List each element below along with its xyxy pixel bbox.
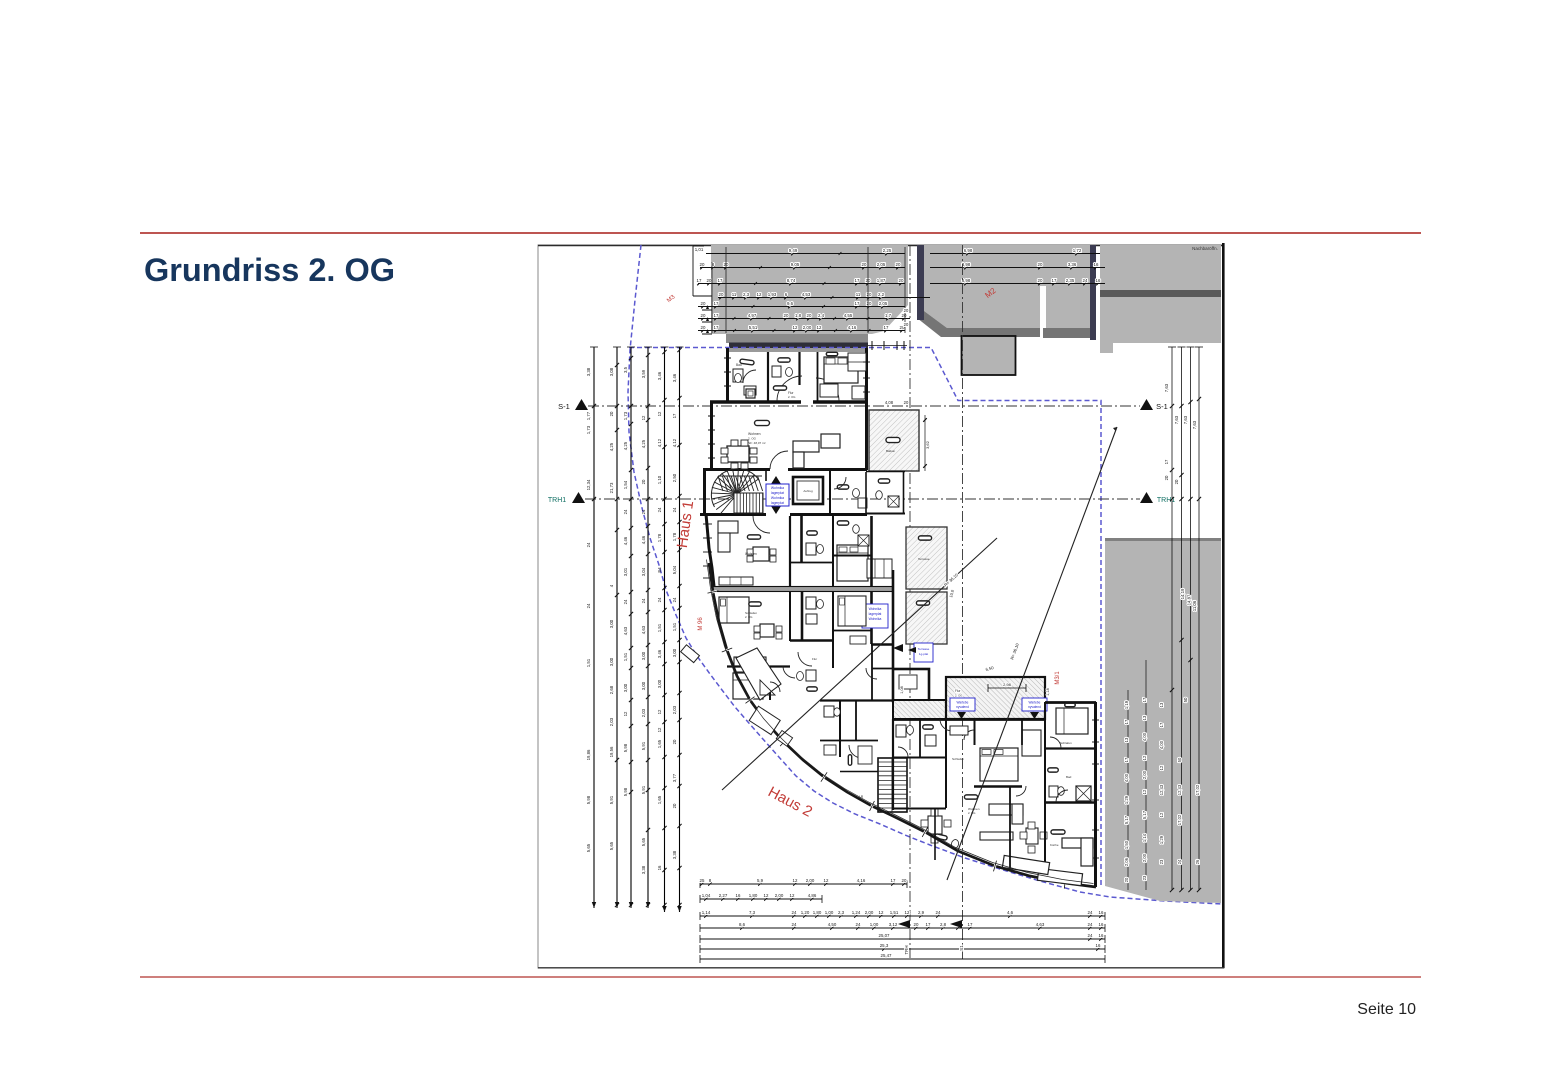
- svg-text:E4: E4: [657, 567, 662, 573]
- svg-text:5,51: 5,51: [749, 325, 758, 330]
- svg-text:20: 20: [902, 313, 907, 318]
- svg-text:7,63: 7,63: [1164, 383, 1169, 392]
- svg-text:Bad: Bad: [1066, 775, 1072, 779]
- svg-text:24: 24: [657, 507, 662, 512]
- svg-text:4,55: 4,55: [844, 313, 853, 318]
- svg-text:2,4: 2,4: [818, 313, 825, 318]
- svg-text:12: 12: [1142, 789, 1147, 794]
- svg-text:20: 20: [641, 479, 646, 484]
- svg-text:4,46: 4,46: [623, 536, 628, 545]
- svg-text:2,68: 2,68: [609, 685, 614, 694]
- svg-text:Wohnika: Wohnika: [869, 607, 882, 611]
- svg-text:24: 24: [856, 922, 861, 927]
- svg-text:24: 24: [1088, 922, 1093, 927]
- svg-text:24: 24: [792, 922, 797, 927]
- svg-text:12: 12: [905, 910, 910, 915]
- svg-text:17: 17: [672, 413, 677, 418]
- svg-text:17: 17: [891, 878, 896, 883]
- svg-text:4,6: 4,6: [1007, 910, 1014, 915]
- svg-text:1,10: 1,10: [657, 475, 662, 484]
- svg-text:2,00: 2,00: [775, 893, 784, 898]
- svg-text:12: 12: [657, 709, 662, 714]
- svg-text:3,01: 3,01: [623, 567, 628, 576]
- svg-text:20: 20: [904, 322, 909, 327]
- svg-text:20: 20: [867, 301, 872, 306]
- svg-text:1,78: 1,78: [657, 533, 662, 542]
- svg-text:4,86: 4,86: [808, 893, 817, 898]
- svg-text:4,25: 4,25: [609, 442, 614, 451]
- svg-text:23: 23: [1159, 859, 1164, 864]
- svg-text:20: 20: [914, 922, 919, 927]
- svg-text:17: 17: [884, 325, 889, 330]
- svg-text:5,04: 5,04: [672, 565, 677, 574]
- svg-text:13: 13: [1142, 715, 1147, 720]
- svg-text:17: 17: [926, 922, 931, 927]
- svg-text:5,91: 5,91: [609, 795, 614, 804]
- svg-text:4,53: 4,53: [802, 292, 811, 297]
- svg-text:12: 12: [1159, 765, 1164, 770]
- svg-text:2. OG: 2. OG: [788, 395, 795, 399]
- svg-text:4,16: 4,16: [857, 878, 866, 883]
- svg-text:21,73: 21,73: [609, 482, 614, 493]
- svg-text:4,46: 4,46: [641, 535, 646, 544]
- svg-text:16: 16: [736, 893, 741, 898]
- svg-text:Wohnika: Wohnika: [771, 486, 784, 490]
- svg-text:2. OG: 2. OG: [745, 615, 752, 619]
- svg-text:1,65: 1,65: [657, 795, 662, 804]
- svg-text:25: 25: [700, 878, 705, 883]
- svg-text:20: 20: [701, 313, 706, 318]
- svg-text:5,65: 5,65: [586, 843, 591, 852]
- svg-text:TRH1: TRH1: [548, 497, 566, 504]
- svg-text:8,74: 8,74: [787, 278, 796, 283]
- svg-text:1,51: 1,51: [672, 622, 677, 631]
- svg-text:1,51: 1,51: [890, 910, 899, 915]
- svg-text:17: 17: [968, 922, 973, 927]
- svg-text:3,12: 3,12: [889, 922, 898, 927]
- svg-text:17: 17: [1164, 459, 1169, 464]
- svg-text:4,00: 4,00: [1124, 773, 1129, 782]
- svg-text:2,03: 2,03: [672, 705, 677, 714]
- svg-text:19,56: 19,56: [609, 746, 614, 757]
- svg-text:Wartebe: Wartebe: [957, 701, 969, 705]
- svg-text:1,04: 1,04: [702, 893, 711, 898]
- svg-text:Aufzug: Aufzug: [803, 489, 813, 493]
- svg-text:20: 20: [904, 400, 909, 405]
- svg-text:50: 50: [1177, 757, 1182, 762]
- svg-text:2,98: 2,98: [1003, 682, 1012, 687]
- svg-text:12: 12: [623, 711, 628, 716]
- svg-text:3,59: 3,59: [641, 369, 646, 378]
- svg-text:24: 24: [657, 597, 662, 602]
- svg-text:1,80: 1,80: [749, 893, 758, 898]
- svg-text:17,02: 17,02: [1195, 784, 1200, 795]
- svg-text:17: 17: [855, 278, 860, 283]
- svg-text:3,46: 3,46: [672, 373, 677, 382]
- svg-text:lagerplat: lagerplat: [771, 491, 784, 495]
- svg-text:2,03: 2,03: [641, 708, 646, 717]
- svg-text:20: 20: [701, 325, 706, 330]
- svg-text:12: 12: [757, 292, 762, 297]
- svg-text:9,6: 9,6: [787, 301, 794, 306]
- svg-text:nyvalend: nyvalend: [1028, 705, 1041, 709]
- svg-text:3,00: 3,00: [609, 657, 614, 666]
- svg-text:3,00: 3,00: [623, 683, 628, 692]
- svg-text:2,00: 2,00: [865, 910, 874, 915]
- svg-text:12: 12: [824, 878, 829, 883]
- svg-text:4,00: 4,00: [1142, 732, 1147, 741]
- svg-text:Küche: Küche: [1050, 843, 1059, 847]
- svg-text:2,00: 2,00: [1142, 853, 1147, 862]
- svg-text:1,08: 1,08: [900, 686, 904, 693]
- svg-text:2,3: 2,3: [838, 910, 845, 915]
- svg-text:16: 16: [1096, 943, 1101, 948]
- svg-text:Wohnen: Wohnen: [745, 552, 757, 556]
- svg-text:1,29: 1,29: [1159, 835, 1164, 844]
- svg-text:16: 16: [657, 865, 662, 870]
- svg-text:4,08: 4,08: [885, 400, 894, 405]
- svg-text:1,51: 1,51: [586, 658, 591, 667]
- svg-text:24: 24: [672, 597, 677, 602]
- svg-text:20: 20: [867, 292, 872, 297]
- svg-text:24: 24: [641, 598, 646, 603]
- svg-text:17: 17: [714, 325, 719, 330]
- svg-text:2,8: 2,8: [940, 922, 947, 927]
- svg-text:23: 23: [1142, 875, 1147, 880]
- svg-text:7,63: 7,63: [1174, 415, 1179, 424]
- svg-text:4,63: 4,63: [641, 625, 646, 634]
- svg-text:Grundriss 2. OG: Grundriss 2. OG: [144, 252, 395, 288]
- svg-text:24: 24: [936, 910, 941, 915]
- svg-text:2,35: 2,35: [1066, 278, 1075, 283]
- svg-text:2,9: 2,9: [918, 910, 925, 915]
- svg-text:17: 17: [1159, 722, 1164, 727]
- svg-text:20: 20: [862, 262, 867, 267]
- svg-text:8,98: 8,98: [962, 262, 971, 267]
- svg-text:1,73: 1,73: [623, 411, 628, 420]
- svg-text:1g-plat: 1g-plat: [919, 652, 928, 656]
- svg-text:24: 24: [623, 509, 628, 514]
- svg-text:12,43: 12,43: [1177, 784, 1182, 795]
- svg-text:12: 12: [817, 325, 822, 330]
- svg-text:24: 24: [586, 603, 591, 608]
- svg-text:17: 17: [697, 278, 702, 283]
- svg-text:24: 24: [792, 910, 797, 915]
- svg-text:TRH: TRH: [904, 945, 909, 954]
- svg-text:17: 17: [1052, 278, 1057, 283]
- svg-text:S-1: S-1: [558, 402, 570, 411]
- svg-text:6,98: 6,98: [962, 278, 971, 283]
- svg-text:3,08: 3,08: [609, 367, 614, 376]
- svg-text:16: 16: [1096, 278, 1101, 283]
- svg-text:24: 24: [1088, 933, 1093, 938]
- svg-text:M3/1: M3/1: [1055, 671, 1061, 685]
- svg-text:3,62: 3,62: [925, 440, 930, 449]
- svg-text:14,19: 14,19: [1180, 588, 1185, 599]
- svg-text:1,29: 1,29: [1124, 795, 1129, 804]
- svg-text:1,01: 1,01: [695, 247, 704, 252]
- svg-text:1,14: 1,14: [1142, 833, 1147, 842]
- svg-text:4,25: 4,25: [641, 439, 646, 448]
- svg-text:3,00: 3,00: [657, 679, 662, 688]
- svg-text:3,00: 3,00: [641, 651, 646, 660]
- svg-text:2. OG: 2. OG: [955, 694, 962, 698]
- svg-text:4,63: 4,63: [1036, 922, 1045, 927]
- svg-text:3,38: 3,38: [641, 865, 646, 874]
- svg-text:2,05: 2,05: [879, 301, 888, 306]
- svg-text:Schlafen: Schlafen: [1060, 741, 1072, 745]
- svg-text:12: 12: [764, 893, 769, 898]
- svg-text:3,38: 3,38: [586, 367, 591, 376]
- svg-text:3,5: 3,5: [623, 366, 628, 373]
- svg-text:1,93: 1,93: [768, 292, 777, 297]
- svg-text:1,54: 1,54: [623, 480, 628, 489]
- svg-text:Wohnika: Wohnika: [771, 496, 784, 500]
- svg-text:NF: 48,07 m²: NF: 48,07 m²: [748, 441, 766, 445]
- svg-text:1,7: 1,7: [885, 313, 892, 318]
- svg-text:20: 20: [672, 803, 677, 808]
- svg-text:1,87: 1,87: [877, 278, 886, 283]
- svg-text:1,50: 1,50: [1124, 840, 1129, 849]
- svg-text:1,24: 1,24: [852, 910, 861, 915]
- svg-text:20: 20: [896, 262, 901, 267]
- svg-text:20: 20: [719, 292, 724, 297]
- svg-text:1,00: 1,00: [870, 922, 879, 927]
- svg-text:20: 20: [899, 278, 904, 283]
- svg-text:3,46: 3,46: [657, 371, 662, 380]
- svg-text:20: 20: [707, 278, 712, 283]
- svg-text:Wohnen: Wohnen: [748, 432, 761, 436]
- svg-text:1,80: 1,80: [813, 910, 822, 915]
- svg-text:1,65: 1,65: [657, 739, 662, 748]
- svg-text:16: 16: [1099, 910, 1104, 915]
- svg-text:20: 20: [1174, 479, 1179, 484]
- svg-text:5,9: 5,9: [757, 878, 764, 883]
- svg-text:24: 24: [672, 507, 677, 512]
- svg-text:4,50: 4,50: [828, 922, 837, 927]
- svg-text:16: 16: [1094, 262, 1099, 267]
- svg-text:2,05: 2,05: [877, 262, 886, 267]
- svg-text:17: 17: [714, 301, 719, 306]
- svg-text:20: 20: [1038, 262, 1043, 267]
- svg-text:1,18: 1,18: [1046, 688, 1050, 695]
- svg-text:Wohnika: Wohnika: [869, 617, 882, 621]
- svg-text:20: 20: [701, 301, 706, 306]
- svg-text:1,51: 1,51: [657, 623, 662, 632]
- svg-text:20: 20: [1164, 475, 1169, 480]
- svg-text:17: 17: [1124, 719, 1129, 724]
- svg-text:25,3: 25,3: [880, 943, 889, 948]
- svg-text:Nachbaröffn.: Nachbaröffn.: [1192, 246, 1218, 251]
- svg-text:12: 12: [657, 727, 662, 732]
- svg-text:12: 12: [657, 411, 662, 416]
- svg-text:5,17: 5,17: [1142, 810, 1147, 819]
- svg-text:12: 12: [879, 910, 884, 915]
- svg-text:3,04: 3,04: [641, 567, 646, 576]
- svg-text:Seite 10: Seite 10: [1357, 1001, 1416, 1018]
- svg-text:5,91: 5,91: [641, 741, 646, 750]
- svg-text:17: 17: [1124, 757, 1129, 762]
- svg-text:11: 11: [732, 292, 737, 297]
- svg-text:25,07: 25,07: [879, 933, 891, 938]
- svg-text:Wartebe: Wartebe: [1029, 701, 1041, 705]
- svg-text:5,98: 5,98: [623, 787, 628, 796]
- svg-text:13: 13: [1124, 737, 1129, 742]
- svg-text:7,63: 7,63: [1183, 415, 1188, 424]
- svg-text:17: 17: [1142, 697, 1147, 702]
- svg-text:nyvalend: nyvalend: [956, 705, 969, 709]
- svg-text:Bad: Bad: [736, 363, 742, 367]
- svg-text:20: 20: [807, 313, 812, 318]
- svg-text:2,25: 2,25: [883, 248, 892, 253]
- svg-text:12: 12: [1159, 812, 1164, 817]
- svg-text:2,00: 2,00: [1142, 770, 1147, 779]
- svg-text:3,00: 3,00: [672, 648, 677, 657]
- svg-text:1,51: 1,51: [623, 652, 628, 661]
- svg-text:lagerplat: lagerplat: [771, 501, 784, 505]
- svg-text:Schlafen: Schlafen: [952, 757, 964, 761]
- svg-text:3,46: 3,46: [657, 649, 662, 658]
- svg-text:1,73: 1,73: [586, 425, 591, 434]
- svg-text:1,8: 1,8: [795, 313, 802, 318]
- svg-text:24: 24: [1177, 859, 1182, 864]
- svg-text:12: 12: [793, 325, 798, 330]
- svg-text:17: 17: [718, 278, 723, 283]
- svg-text:5,98: 5,98: [586, 795, 591, 804]
- svg-text:16: 16: [1099, 933, 1104, 938]
- svg-text:4,25: 4,25: [623, 441, 628, 450]
- svg-text:4,16: 4,16: [848, 325, 857, 330]
- svg-text:24: 24: [641, 509, 646, 514]
- svg-text:4,63: 4,63: [623, 626, 628, 635]
- svg-text:5,17: 5,17: [1124, 815, 1129, 824]
- svg-text:5,65: 5,65: [609, 841, 614, 850]
- svg-text:3,00: 3,00: [609, 619, 614, 628]
- svg-text:11: 11: [856, 292, 861, 297]
- svg-text:12: 12: [790, 893, 795, 898]
- svg-text:14,87: 14,87: [1187, 594, 1192, 605]
- svg-text:1,77: 1,77: [586, 411, 591, 420]
- svg-text:12,34: 12,34: [586, 479, 591, 490]
- svg-text:9,49: 9,49: [789, 248, 798, 253]
- svg-text:Balkon: Balkon: [886, 449, 896, 453]
- svg-text:7,63: 7,63: [1192, 420, 1197, 429]
- svg-text:20: 20: [609, 411, 614, 416]
- svg-text:20: 20: [1038, 278, 1043, 283]
- svg-text:12,43: 12,43: [1159, 784, 1164, 795]
- svg-text:3,77: 3,77: [672, 773, 677, 782]
- svg-text:Flur: Flur: [955, 689, 961, 693]
- svg-text:2,00: 2,00: [803, 325, 812, 330]
- svg-text:12: 12: [793, 878, 798, 883]
- svg-text:12: 12: [1142, 755, 1147, 760]
- svg-text:50: 50: [1183, 697, 1188, 702]
- svg-text:17: 17: [714, 313, 719, 318]
- svg-text:17,02: 17,02: [1177, 814, 1182, 825]
- svg-text:17: 17: [855, 301, 860, 306]
- svg-text:3,00: 3,00: [641, 681, 646, 690]
- svg-text:1,19: 1,19: [1124, 700, 1129, 709]
- svg-text:1,72: 1,72: [1073, 248, 1082, 253]
- svg-text:13: 13: [1159, 702, 1164, 707]
- svg-text:20: 20: [1124, 877, 1129, 882]
- svg-text:20: 20: [672, 739, 677, 744]
- svg-text:19,86: 19,86: [586, 749, 591, 760]
- svg-text:Terrasse: Terrasse: [918, 647, 930, 651]
- svg-text:4,12: 4,12: [657, 438, 662, 447]
- svg-text:4,97: 4,97: [748, 313, 757, 318]
- svg-text:4,12: 4,12: [672, 438, 677, 447]
- svg-text:2,50: 2,50: [672, 473, 677, 482]
- svg-text:3,38: 3,38: [672, 850, 677, 859]
- svg-text:20: 20: [784, 313, 789, 318]
- svg-text:9,05: 9,05: [791, 262, 800, 267]
- svg-text:2,00: 2,00: [806, 878, 815, 883]
- svg-text:26: 26: [1195, 859, 1200, 864]
- svg-text:20: 20: [904, 308, 909, 313]
- svg-text:1,20: 1,20: [801, 910, 810, 915]
- svg-text:2,2: 2,2: [878, 292, 885, 297]
- svg-text:5,91: 5,91: [641, 785, 646, 794]
- svg-text:Flur: Flur: [812, 657, 817, 661]
- svg-text:20: 20: [700, 262, 705, 267]
- svg-text:M 96: M 96: [698, 617, 704, 631]
- svg-text:11,06: 11,06: [1192, 600, 1197, 611]
- svg-text:3,36: 3,36: [1068, 262, 1077, 267]
- svg-text:2,06: 2,06: [1124, 857, 1129, 866]
- svg-text:20: 20: [902, 878, 907, 883]
- svg-text:4,00: 4,00: [1159, 740, 1164, 749]
- svg-text:1,14: 1,14: [702, 910, 711, 915]
- svg-text:2. OG: 2. OG: [748, 437, 757, 441]
- svg-text:24: 24: [586, 542, 591, 547]
- svg-text:1,00: 1,00: [825, 910, 834, 915]
- svg-text:5,98: 5,98: [623, 743, 628, 752]
- svg-text:24: 24: [1088, 910, 1093, 915]
- svg-text:6,98: 6,98: [964, 248, 973, 253]
- svg-text:25,47: 25,47: [881, 953, 893, 958]
- svg-text:8,6: 8,6: [739, 922, 746, 927]
- svg-text:2,3: 2,3: [743, 292, 750, 297]
- svg-text:24: 24: [1083, 278, 1088, 283]
- svg-text:12: 12: [641, 415, 646, 420]
- svg-text:16: 16: [1099, 922, 1104, 927]
- svg-text:lagerplat: lagerplat: [869, 612, 882, 616]
- svg-text:5,65: 5,65: [641, 837, 646, 846]
- svg-text:2,27: 2,27: [719, 893, 728, 898]
- svg-text:Terrasse: Terrasse: [918, 557, 930, 561]
- svg-text:S1: S1: [959, 945, 964, 951]
- svg-text:7,3: 7,3: [749, 910, 756, 915]
- svg-text:24: 24: [623, 599, 628, 604]
- svg-text:S-1: S-1: [1156, 402, 1168, 411]
- svg-text:2,03: 2,03: [609, 717, 614, 726]
